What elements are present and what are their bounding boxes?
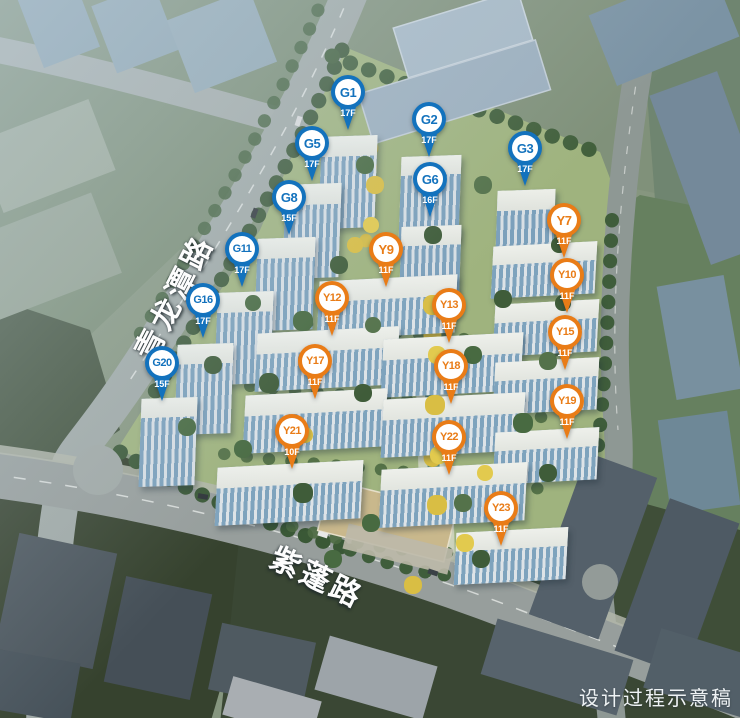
map-pin-y17: Y1711F (298, 344, 332, 399)
pin-balloon: Y7 (547, 203, 581, 237)
pin-balloon: G6 (413, 162, 447, 196)
pin-balloon: Y21 (275, 414, 309, 448)
map-pin-y12: Y1211F (315, 281, 349, 336)
pin-floor-label: 11F (298, 377, 332, 387)
pin-balloon: G8 (272, 180, 306, 214)
pin-balloon: Y12 (315, 281, 349, 315)
pin-building-label: G20 (149, 350, 175, 376)
map-pin-g3: G317F (508, 131, 542, 186)
pin-balloon: Y18 (434, 349, 468, 383)
map-pin-y7: Y711F (547, 203, 581, 258)
pin-building-label: Y23 (488, 495, 514, 521)
map-pin-y21: Y2110F (275, 414, 309, 469)
pin-building-label: G6 (417, 166, 443, 192)
pin-building-label: Y12 (319, 285, 345, 311)
pin-floor-label: 11F (548, 348, 582, 358)
pin-building-label: Y21 (279, 418, 305, 444)
pin-building-label: G3 (512, 135, 538, 161)
pin-balloon: G1 (331, 75, 365, 109)
pin-balloon: Y9 (369, 232, 403, 266)
pin-floor-label: 17F (508, 164, 542, 174)
pin-balloon: Y19 (550, 384, 584, 418)
site-plan-rendering: 青龙潭路 紫蓬路 G117FG217FG317FG517FG616FG815FG… (0, 0, 740, 718)
pin-floor-label: 17F (186, 316, 220, 326)
watermark-text: 设计过程示意稿 (579, 682, 733, 711)
pin-balloon: G20 (145, 346, 179, 380)
pin-building-label: Y9 (373, 236, 399, 262)
pin-building-label: G16 (190, 287, 216, 313)
pin-floor-label: 15F (145, 379, 179, 389)
pin-floor-label: 11F (484, 524, 518, 534)
pin-balloon: Y22 (432, 420, 466, 454)
pin-balloon: Y17 (298, 344, 332, 378)
map-pin-y15: Y1511F (548, 315, 582, 370)
pin-building-label: Y19 (554, 388, 580, 414)
pin-floor-label: 17F (225, 265, 259, 275)
pin-floor-label: 10F (275, 447, 309, 457)
site-building (138, 397, 197, 487)
pin-floor-label: 15F (272, 213, 306, 223)
pin-floor-label: 11F (315, 314, 349, 324)
pin-building-label: G1 (335, 79, 361, 105)
pin-floor-label: 11F (432, 321, 466, 331)
map-pin-y9: Y911F (369, 232, 403, 287)
pin-balloon: G2 (412, 102, 446, 136)
pin-building-label: Y10 (554, 262, 580, 288)
map-pin-g1: G117F (331, 75, 365, 130)
pin-floor-label: 11F (432, 453, 466, 463)
map-pin-g8: G815F (272, 180, 306, 235)
pin-floor-label: 16F (413, 195, 447, 205)
map-pin-y19: Y1911F (550, 384, 584, 439)
pin-floor-label: 11F (434, 382, 468, 392)
map-pin-g5: G517F (295, 126, 329, 181)
pin-building-label: Y13 (436, 292, 462, 318)
pin-building-label: G11 (229, 236, 255, 262)
pin-building-label: Y7 (551, 207, 577, 233)
pin-balloon: Y23 (484, 491, 518, 525)
pin-floor-label: 17F (412, 135, 446, 145)
map-pin-g11: G1117F (225, 232, 259, 287)
map-pin-g20: G2015F (145, 346, 179, 401)
pin-building-label: Y15 (552, 319, 578, 345)
map-pin-y10: Y1011F (550, 258, 584, 313)
pin-balloon: Y10 (550, 258, 584, 292)
pin-balloon: Y13 (432, 288, 466, 322)
pin-balloon: Y15 (548, 315, 582, 349)
map-pin-y22: Y2211F (432, 420, 466, 475)
pin-balloon: G11 (225, 232, 259, 266)
site-building (215, 460, 364, 526)
map-pin-g6: G616F (413, 162, 447, 217)
pin-balloon: G5 (295, 126, 329, 160)
pin-floor-label: 17F (295, 159, 329, 169)
map-pin-g16: G1617F (186, 283, 220, 338)
map-pin-y13: Y1311F (432, 288, 466, 343)
pin-building-label: Y22 (436, 424, 462, 450)
pin-balloon: G16 (186, 283, 220, 317)
pin-floor-label: 11F (550, 417, 584, 427)
pin-building-label: Y18 (438, 353, 464, 379)
map-pin-y18: Y1811F (434, 349, 468, 404)
pin-floor-label: 11F (369, 265, 403, 275)
pin-building-label: G2 (416, 106, 442, 132)
map-pin-g2: G217F (412, 102, 446, 157)
pin-balloon: G3 (508, 131, 542, 165)
map-pin-y23: Y2311F (484, 491, 518, 546)
pin-building-label: G8 (276, 184, 302, 210)
pin-floor-label: 17F (331, 108, 365, 118)
pin-floor-label: 11F (550, 291, 584, 301)
pin-building-label: G5 (299, 130, 325, 156)
pin-building-label: Y17 (302, 348, 328, 374)
tree-cluster (0, 0, 6, 6)
pin-floor-label: 11F (547, 236, 581, 246)
